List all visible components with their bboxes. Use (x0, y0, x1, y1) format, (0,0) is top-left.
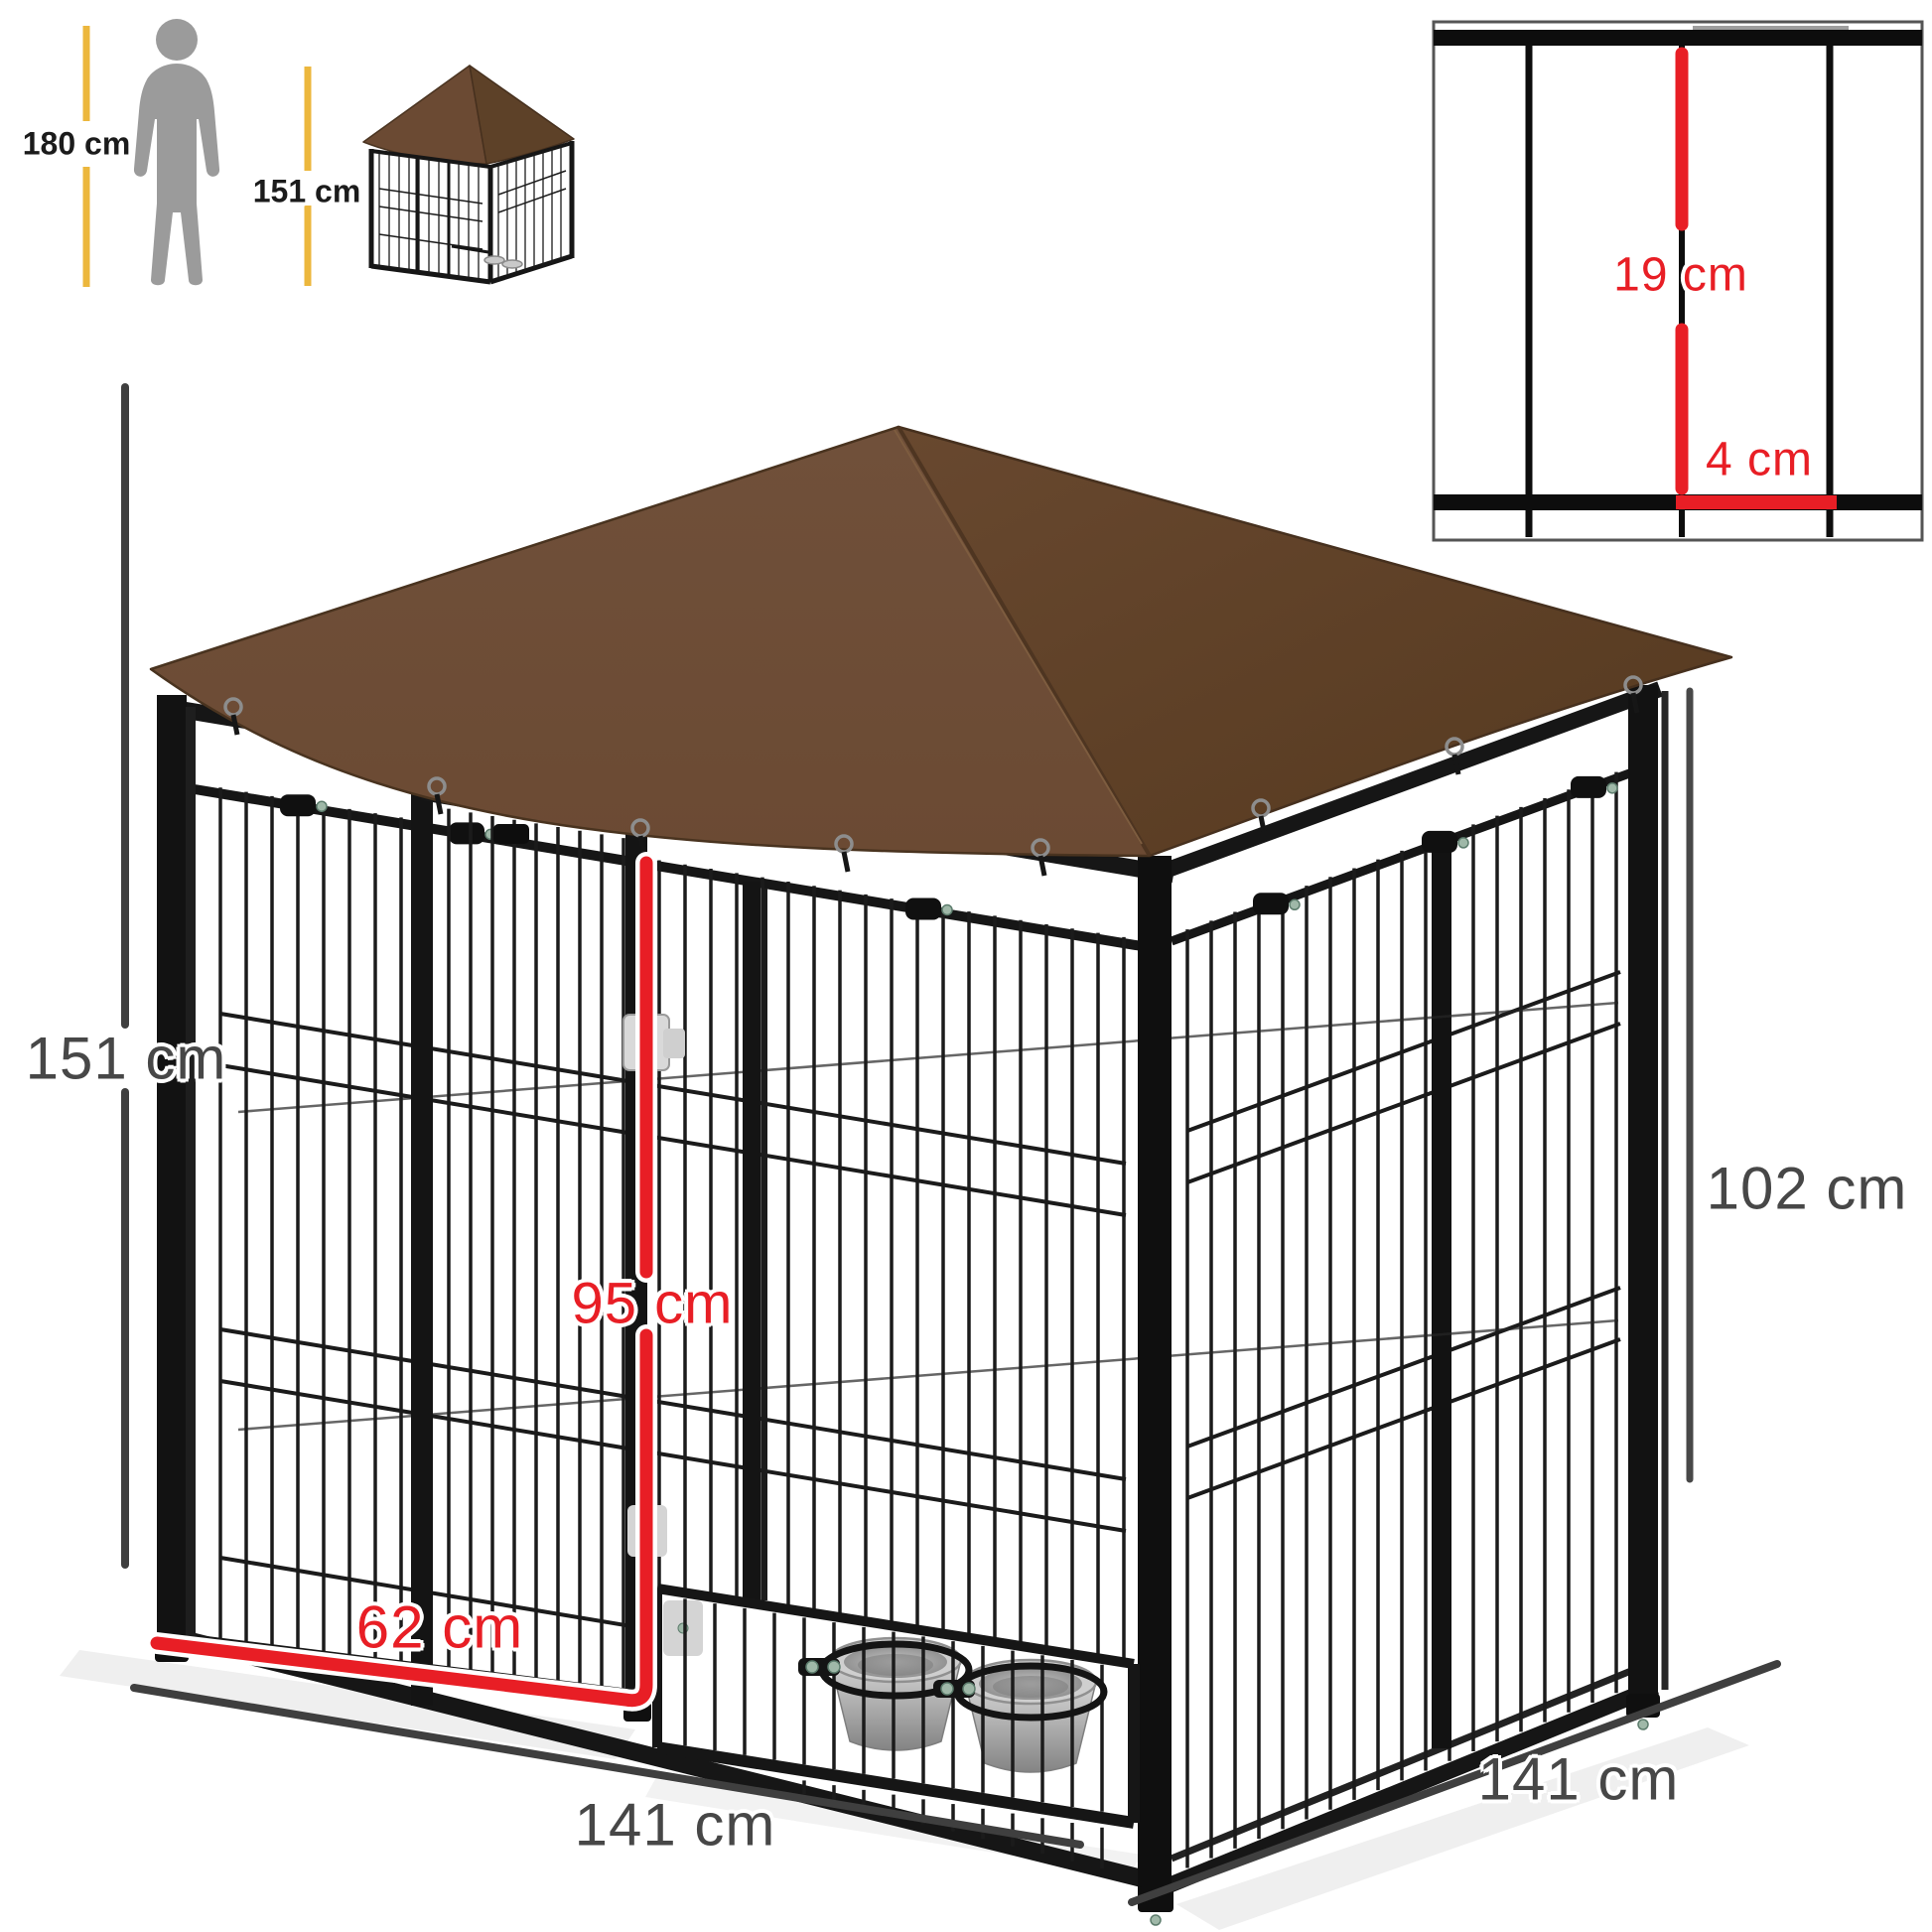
human-height-label: 180 cm (23, 126, 131, 163)
total-height-label: 151 cm (26, 1025, 227, 1093)
mesh-bar-spacing-label: 4 cm (1706, 433, 1813, 487)
base-width-label: 141 cm (575, 1791, 776, 1860)
base-depth-label: 141 cm (1478, 1745, 1680, 1814)
product-dimension-diagram: 180 cm 151 cm 151 cm 102 cm 95 cm 62 cm … (0, 0, 1932, 1932)
thumbnail-height-label: 151 cm (253, 174, 361, 210)
door-height-label: 95 cm (572, 1271, 734, 1337)
mesh-opening-height-label: 19 cm (1613, 248, 1748, 303)
panel-height-label: 102 cm (1707, 1155, 1908, 1223)
door-width-label: 62 cm (356, 1593, 523, 1662)
